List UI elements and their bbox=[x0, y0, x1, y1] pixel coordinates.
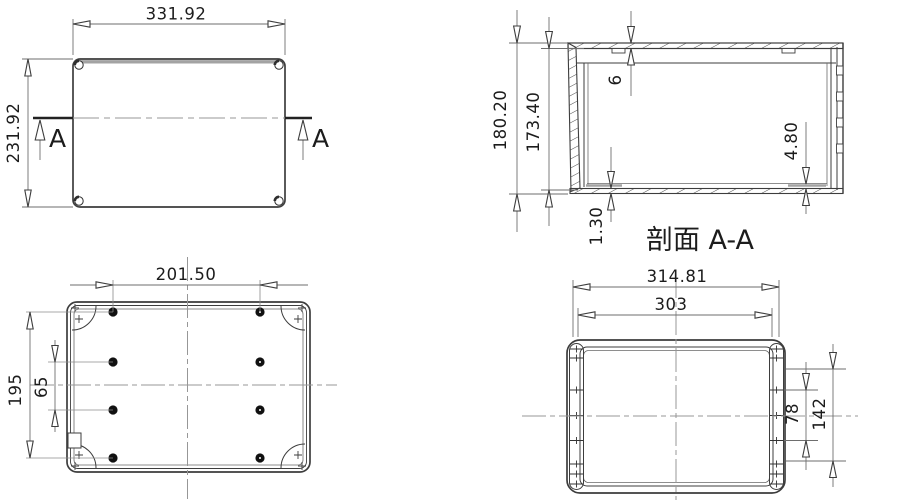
lid-outline bbox=[73, 59, 285, 207]
dim-hole-span-vertical-label: 195 bbox=[6, 374, 25, 407]
view-section-aa: 180.20 173.40 6 4.80 bbox=[491, 10, 843, 256]
lid-clip bbox=[782, 49, 795, 54]
enclosure-drawing: 331.92 231.92 A A bbox=[0, 0, 900, 500]
dim-lid-height-label: 231.92 bbox=[4, 103, 23, 164]
dim-lid-thickness bbox=[628, 11, 635, 96]
corner-notch bbox=[68, 433, 81, 448]
dim-lid-width bbox=[73, 19, 285, 55]
engineering-drawing-canvas: 331.92 231.92 A A bbox=[0, 0, 900, 500]
dim-bottom-thickness-label: 1.30 bbox=[587, 207, 606, 246]
view-lid-outside: 331.92 231.92 A A bbox=[4, 5, 329, 208]
dim-flange-hole-span-label: 142 bbox=[810, 398, 829, 431]
lid-clip bbox=[612, 49, 625, 54]
section-title: 剖面 A-A bbox=[646, 225, 755, 256]
section-arrow-icon bbox=[298, 120, 308, 140]
dim-overall-height-label: 180.20 bbox=[491, 90, 510, 151]
dim-boss-height bbox=[803, 122, 810, 214]
view-lid-inside: 314.81 303 142 78 bbox=[522, 267, 858, 500]
section-arrow-icon bbox=[35, 120, 45, 140]
dim-lid-width-label: 331.92 bbox=[146, 5, 207, 24]
view-base-inside: 201.50 195 65 bbox=[6, 257, 337, 499]
dim-overall-width-label: 314.81 bbox=[647, 267, 708, 286]
section-bottom-wall bbox=[570, 189, 843, 194]
dim-boss-height-label: 4.80 bbox=[782, 122, 801, 161]
section-left-wall bbox=[568, 43, 580, 192]
dim-body-width-label: 303 bbox=[655, 295, 688, 314]
dim-hole-span-horizontal-label: 201.50 bbox=[156, 265, 217, 284]
dim-hole-pitch-label: 65 bbox=[32, 376, 51, 398]
section-letter-left: A bbox=[49, 124, 66, 153]
dim-internal-height-label: 173.40 bbox=[524, 92, 543, 153]
dim-lid-thickness-label: 6 bbox=[606, 75, 625, 86]
base-outline bbox=[67, 302, 310, 472]
dim-flange-hole-pitch-label: 78 bbox=[783, 403, 802, 425]
section-letter-right: A bbox=[312, 124, 329, 153]
dim-hole-pitch bbox=[52, 340, 58, 432]
section-lid-wall bbox=[568, 43, 843, 49]
